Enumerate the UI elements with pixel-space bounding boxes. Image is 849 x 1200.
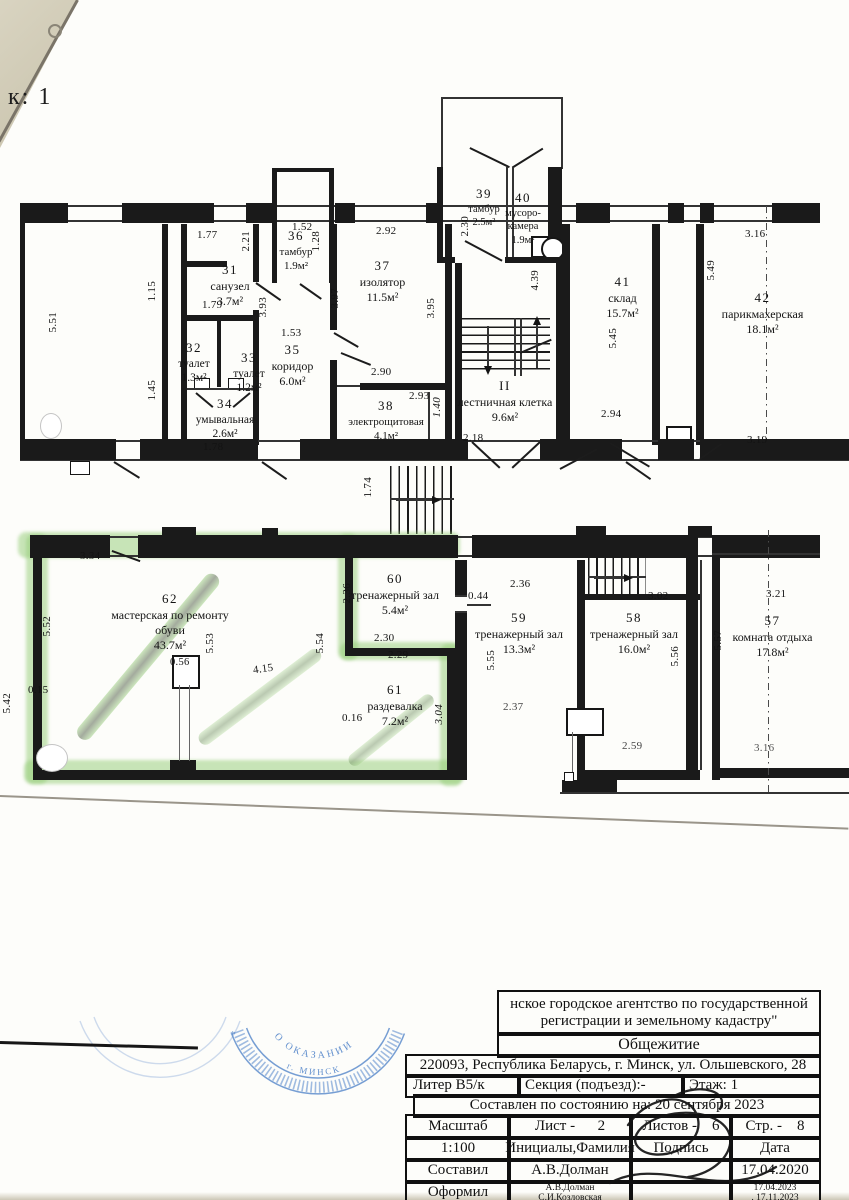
room-name: мусоро-камера <box>494 207 552 234</box>
room-number: 59 <box>465 610 573 627</box>
room-name: изолятор <box>340 275 425 290</box>
wall <box>700 439 849 460</box>
dimension: 3.34 <box>80 550 100 562</box>
wall <box>447 648 455 780</box>
door-swing <box>299 283 321 300</box>
dimension: 2.30 <box>459 216 471 236</box>
dimension: 3.97 <box>329 288 341 308</box>
guide-line <box>179 685 180 761</box>
room-number: 61 <box>345 682 445 699</box>
room-name: коридор <box>255 359 330 374</box>
wall <box>576 203 610 223</box>
dimension: 3.02 <box>648 590 668 602</box>
dimension: 1.28 <box>310 231 322 251</box>
titleblock-agency: нское городское агентство по государстве… <box>497 990 821 1036</box>
wall <box>335 203 355 223</box>
wall <box>272 168 334 172</box>
wall <box>562 224 570 445</box>
dimension: 5.52 <box>41 616 53 636</box>
plan-corner-label: к: 1 <box>8 84 52 111</box>
wall <box>162 224 168 445</box>
canopy-line <box>470 147 510 168</box>
dimension: 5.54 <box>314 633 326 653</box>
dimension: 3.19 <box>747 434 767 446</box>
dimension: 4.39 <box>529 270 541 290</box>
dimension: 3.21 <box>766 588 786 600</box>
wall <box>686 536 698 780</box>
room-area: 1.9м² <box>494 234 552 247</box>
wall <box>505 257 562 263</box>
wall <box>652 224 660 445</box>
stair-arrow-down <box>484 366 492 375</box>
dimension: 5.53 <box>204 633 216 653</box>
door-swing <box>113 461 140 479</box>
wall <box>33 536 42 780</box>
room-number: 41 <box>585 274 660 291</box>
wall <box>577 770 700 780</box>
door-swing <box>471 441 500 468</box>
dimension: 1.79 <box>202 299 222 311</box>
sheet-edge-line <box>0 795 848 830</box>
stamp-text: О ОКАЗАНИИ <box>272 1031 356 1061</box>
dimension: 1.45 <box>146 380 158 400</box>
titleblock-drawn-label: Оформил <box>405 1180 511 1200</box>
room-area: 9.6м² <box>455 410 555 425</box>
dimension: 1.53 <box>281 327 301 339</box>
agency-line1: нское городское агентство по государстве… <box>510 996 808 1012</box>
wall <box>712 553 820 555</box>
wall <box>122 203 214 223</box>
binder-ring-icon <box>48 24 62 38</box>
door-jamb <box>455 595 467 597</box>
room-number: 37 <box>340 258 425 275</box>
door-swing <box>512 441 541 468</box>
wall <box>658 439 694 460</box>
dimension: 2.93 <box>409 390 429 402</box>
wall <box>246 203 272 223</box>
room-label-37: 37 изолятор 11.5м² <box>340 258 425 305</box>
room-name: тренажерный зал <box>340 588 450 603</box>
wall <box>140 439 258 460</box>
room-area: 18.1м² <box>700 322 825 337</box>
wall <box>560 792 849 794</box>
scanner-corner-artifact <box>0 0 90 150</box>
stair-arrow-line <box>594 577 626 579</box>
room-number: 60 <box>340 571 450 588</box>
dimension: 4.15 <box>252 662 274 677</box>
dimension: 0.16 <box>342 712 362 724</box>
room-number: 42 <box>700 290 825 307</box>
dimension: 1.40 <box>431 397 443 417</box>
stair-divider <box>514 318 516 376</box>
dimension: 5.49 <box>705 260 717 280</box>
room-name: тренажерный зал <box>465 627 573 642</box>
room-area: 2.6м² <box>175 427 275 442</box>
room-number: 57 <box>725 613 820 630</box>
dimension: 0.56 <box>170 657 190 668</box>
wall <box>700 203 714 223</box>
stair-arrow-right <box>624 574 633 582</box>
wall <box>441 97 563 99</box>
room-label-59: 59 тренажерный зал 13.3м² <box>465 610 573 657</box>
wall <box>170 760 196 772</box>
wall <box>33 770 457 780</box>
handwritten-signature <box>580 1085 820 1200</box>
dimension: 2.36 <box>510 578 530 590</box>
wall <box>455 560 467 780</box>
wall <box>20 439 116 460</box>
room-number: 58 <box>580 610 688 627</box>
wall <box>262 528 278 537</box>
room-label-42: 42 парикмахерская 18.1м² <box>700 290 825 337</box>
dimension: 0.44 <box>468 590 488 602</box>
room-area: 5.4м² <box>340 603 450 618</box>
wall <box>441 97 443 169</box>
dimension: 0.15 <box>28 684 48 696</box>
dimension: 2.37 <box>503 701 523 713</box>
wall <box>712 768 849 778</box>
dimension: 1.15 <box>146 281 158 301</box>
dimension: 1.77 <box>197 229 217 241</box>
dimension: 5.56 <box>669 646 681 666</box>
dimension: 5.55 <box>485 650 497 670</box>
dimension: 3.95 <box>425 298 437 318</box>
room-label-35: 35 коридор 6.0м² <box>255 342 330 389</box>
room-number: 34 <box>175 396 275 413</box>
wall <box>337 385 360 387</box>
guide-line <box>189 685 190 761</box>
room-name: комната отдыха <box>725 630 820 645</box>
stair-arrow-right <box>432 496 441 504</box>
dimension: 5.57 <box>712 630 724 650</box>
room-area: 1.9м² <box>265 259 327 273</box>
room-area: 17.8м² <box>725 645 820 660</box>
dimension: 2.18 <box>463 432 483 444</box>
dimension: 5.45 <box>607 328 619 348</box>
room-number: 62 <box>110 591 230 608</box>
wall <box>576 526 606 537</box>
room-number: 31 <box>185 262 275 279</box>
room-number: II <box>455 378 555 395</box>
door-swing <box>261 461 287 480</box>
equipment <box>564 772 574 782</box>
room-label-60: 60 тренажерный зал 5.4м² <box>340 571 450 618</box>
dimension: 3.16 <box>745 228 765 240</box>
wall <box>437 167 443 263</box>
dimension: 2.59 <box>622 740 642 752</box>
room-label-41: 41 склад 15.7м² <box>585 274 660 321</box>
wall <box>20 205 25 457</box>
wall <box>772 203 820 223</box>
room-label-34: 34 умывальная 2.6м² <box>175 396 275 442</box>
stair-arrow-line <box>487 326 489 368</box>
room-name: лестничная клетка <box>455 395 555 410</box>
stair-arrow-up <box>533 316 541 325</box>
canopy-line <box>512 148 543 168</box>
dimension: 2.30 <box>374 632 394 644</box>
room-name: тренажерный зал <box>580 627 688 642</box>
wall <box>577 560 585 780</box>
dimension: 2.21 <box>240 231 252 251</box>
dim-leader <box>467 604 491 606</box>
svg-text:О ОКАЗАНИИ: О ОКАЗАНИИ <box>272 1031 356 1061</box>
agency-line2: регистрации и земельному кадастру" <box>541 1013 778 1029</box>
wall <box>162 527 196 537</box>
stair-arrow-line <box>396 499 434 501</box>
dimension: 2.94 <box>601 408 621 420</box>
dimension: 1.78 <box>203 441 223 453</box>
threshold <box>70 461 90 475</box>
door-swing <box>334 332 359 348</box>
dimension: 2.90 <box>371 366 391 378</box>
wall <box>472 535 688 558</box>
room-name: умывальная <box>175 413 275 428</box>
room-name: склад <box>585 291 660 306</box>
room-name: парикмахерская <box>700 307 825 322</box>
faint-stamp <box>0 935 260 1095</box>
dimension: 5.51 <box>47 312 59 332</box>
dimension: 3.93 <box>257 297 269 317</box>
scan-blob <box>40 413 62 439</box>
wall <box>712 548 720 780</box>
guide-line <box>572 732 573 772</box>
room-label-57: 57 комната отдыха 17.8м² <box>725 613 820 660</box>
room-name: санузел <box>185 279 275 294</box>
wall <box>585 594 700 600</box>
wall <box>20 203 68 223</box>
stair-divider <box>520 318 522 376</box>
room-label-40: 40 мусоро-камера 1.9м² <box>494 190 552 247</box>
dimension: 2.92 <box>376 225 396 237</box>
room-area: 15.7м² <box>585 306 660 321</box>
wall <box>668 203 684 223</box>
stair-arrow-line <box>536 322 538 368</box>
wall <box>561 97 563 169</box>
room-number: 35 <box>255 342 330 359</box>
wall <box>437 257 455 263</box>
wall <box>360 383 447 390</box>
room-label-stairwell: II лестничная клетка 9.6м² <box>455 378 555 425</box>
room-number: 40 <box>494 190 552 207</box>
dimension: 2.29 <box>388 649 408 661</box>
scan-blob <box>36 744 68 772</box>
dimension: 2.36 <box>341 583 353 603</box>
dimension: 3.04 <box>433 704 445 724</box>
room-area: 6.0м² <box>255 374 330 389</box>
dimension: 5.42 <box>1 693 13 713</box>
room-area: 13.3м² <box>465 642 573 657</box>
dimension: 1.74 <box>362 477 374 497</box>
room-area: 11.5м² <box>340 290 425 305</box>
highlight-stroke <box>196 646 324 747</box>
scanned-floor-plan-page: к: 1 <box>0 0 849 1200</box>
wall <box>138 535 458 558</box>
room-area: 4.1м² <box>322 429 450 443</box>
door-swing <box>341 352 371 366</box>
wall <box>330 224 337 330</box>
wall <box>700 560 702 770</box>
dimension: 3.16 <box>754 742 774 754</box>
